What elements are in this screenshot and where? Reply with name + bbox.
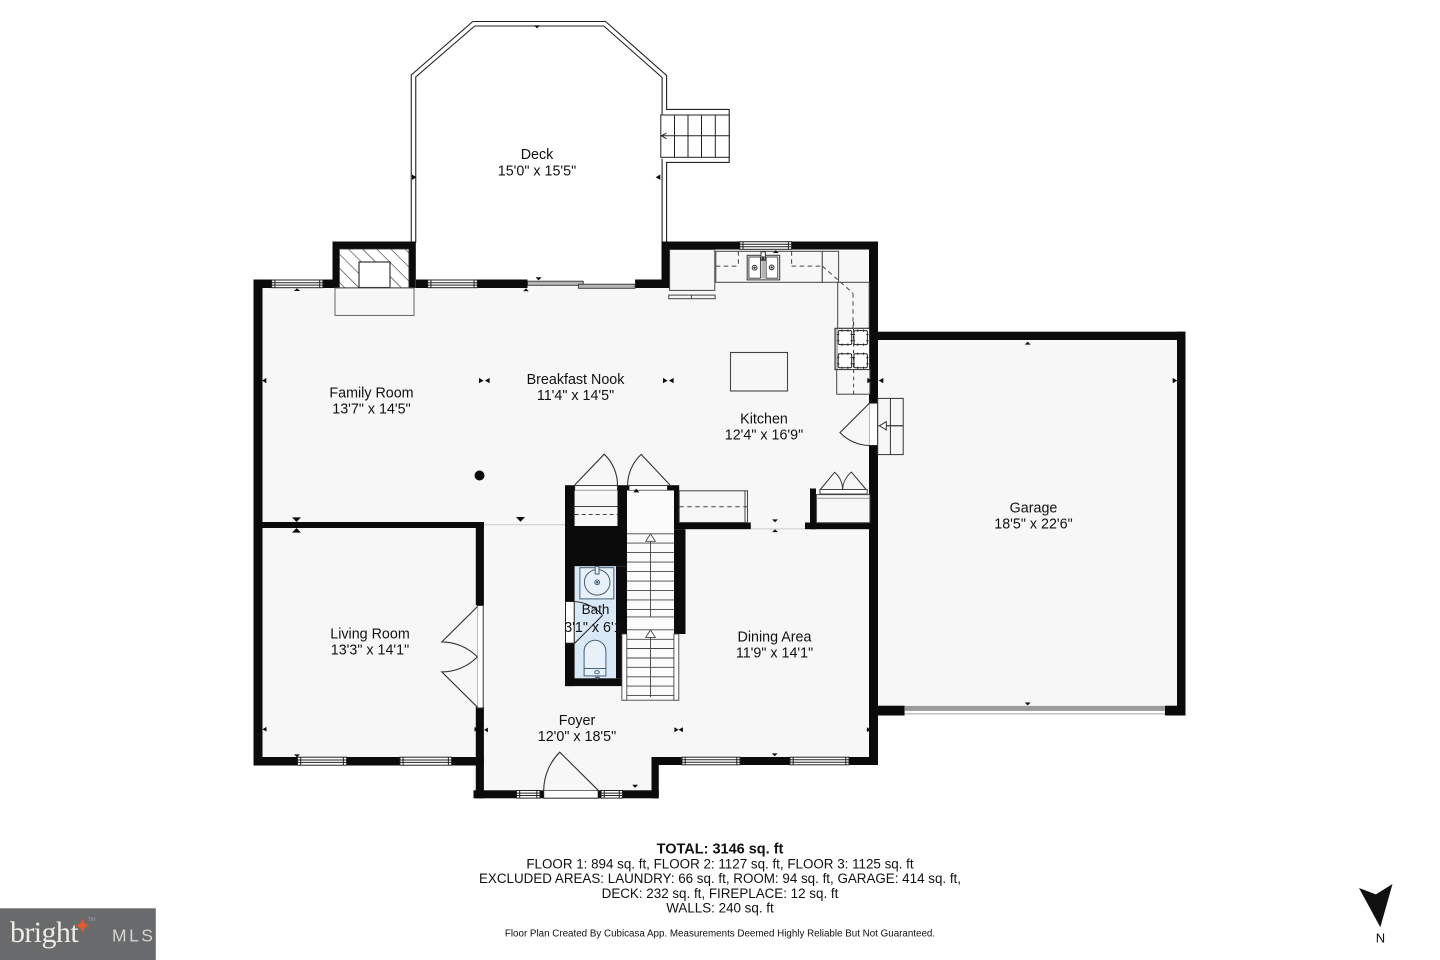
svg-text:EXCLUDED AREAS: LAUNDRY: 66 sq: EXCLUDED AREAS: LAUNDRY: 66 sq. ft, ROOM…	[479, 871, 961, 886]
svg-text:3'1" x 6'1": 3'1" x 6'1"	[564, 620, 627, 636]
svg-text:Floor Plan Created By Cubicasa: Floor Plan Created By Cubicasa App. Meas…	[505, 929, 935, 940]
svg-text:Dining Area: Dining Area	[738, 630, 812, 646]
svg-text:MLS: MLS	[112, 926, 155, 946]
svg-text:N: N	[1376, 931, 1385, 946]
svg-text:Family Room: Family Room	[329, 386, 413, 402]
svg-text:Living Room: Living Room	[330, 627, 409, 643]
svg-text:11'9" x 14'1": 11'9" x 14'1"	[736, 646, 813, 662]
svg-text:bright: bright	[10, 916, 79, 949]
svg-text:Bath: Bath	[582, 602, 610, 617]
svg-text:Garage: Garage	[1010, 501, 1058, 517]
svg-text:TM: TM	[88, 917, 96, 923]
svg-text:13'7" x 14'5": 13'7" x 14'5"	[332, 402, 410, 418]
svg-text:12'0" x 18'5": 12'0" x 18'5"	[538, 729, 616, 745]
svg-text:Deck: Deck	[521, 147, 554, 163]
svg-text:Kitchen: Kitchen	[740, 412, 788, 428]
svg-text:12'4" x 16'9": 12'4" x 16'9"	[725, 428, 803, 444]
svg-text:Breakfast Nook: Breakfast Nook	[527, 372, 626, 388]
svg-text:Foyer: Foyer	[559, 713, 596, 729]
svg-text:TOTAL: 3146 sq. ft: TOTAL: 3146 sq. ft	[657, 842, 784, 858]
svg-text:WALLS: 240 sq. ft: WALLS: 240 sq. ft	[666, 900, 774, 915]
svg-text:FLOOR 1: 894 sq. ft, FLOOR 2:: FLOOR 1: 894 sq. ft, FLOOR 2: 1127 sq. f…	[526, 857, 914, 872]
svg-text:15'0" x 15'5": 15'0" x 15'5"	[498, 164, 576, 180]
svg-text:11'4" x 14'5": 11'4" x 14'5"	[537, 388, 614, 404]
svg-text:DECK: 232 sq. ft, FIREPLACE: 1: DECK: 232 sq. ft, FIREPLACE: 12 sq. ft	[602, 886, 839, 901]
svg-text:18'5" x 22'6": 18'5" x 22'6"	[994, 517, 1072, 533]
svg-text:13'3" x 14'1": 13'3" x 14'1"	[331, 643, 409, 659]
